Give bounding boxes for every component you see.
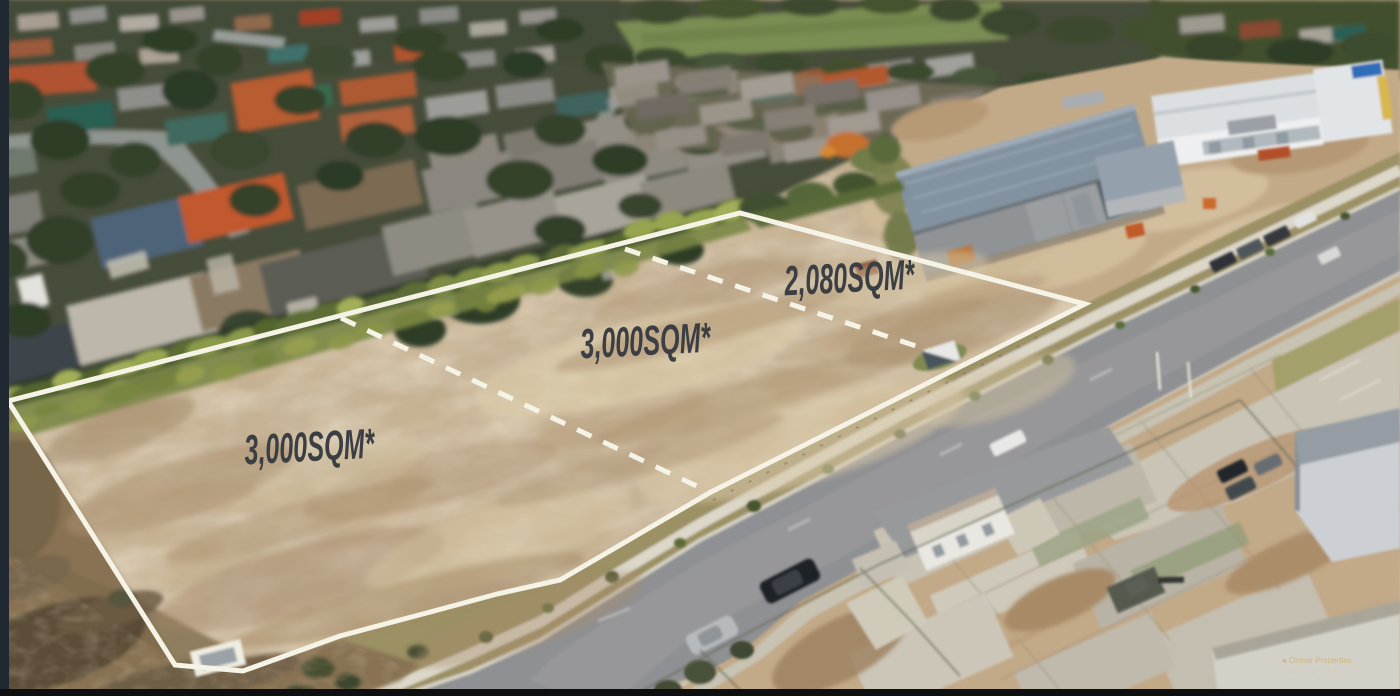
svg-text:● Oxmar Properties: ● Oxmar Properties: [1282, 656, 1352, 665]
svg-text:2,080SQM*: 2,080SQM*: [782, 252, 916, 305]
svg-text:3,000SQM*: 3,000SQM*: [243, 421, 377, 474]
svg-text:3,000SQM*: 3,000SQM*: [579, 315, 713, 368]
svg-text:Brisbane Land Sales: Brisbane Land Sales: [1290, 669, 1355, 676]
